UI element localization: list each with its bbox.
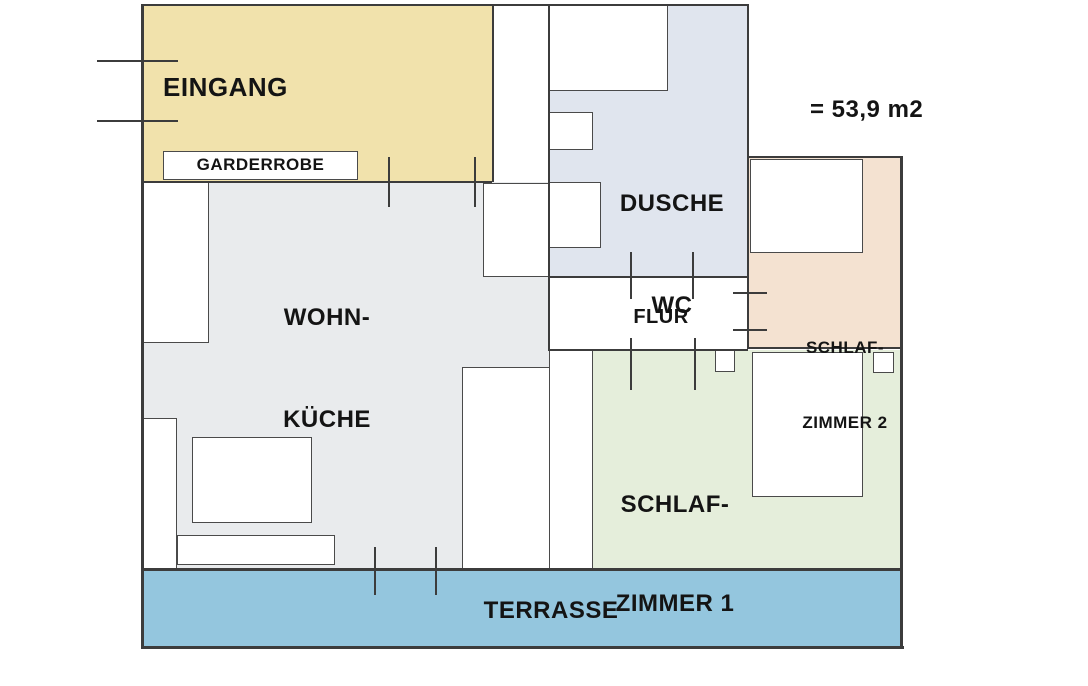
opening-tick [435, 547, 437, 595]
terrasse-label: TERRASSE [451, 597, 651, 626]
wohn-kueche-label-line2: KÜCHE [227, 403, 427, 437]
garderrobe-box: GARDERROBE [163, 151, 358, 180]
schlafzimmer-2-label-line2: ZIMMER 2 [770, 410, 920, 435]
opening-tick [374, 547, 376, 595]
furniture-box [143, 182, 209, 343]
area-annotation: = 53,9 m2 [810, 96, 923, 125]
dusche-wc-label-line1: DUSCHE [572, 187, 772, 221]
eingang-label: EINGANG [163, 72, 288, 103]
schlafzimmer-2-label-line1: SCHLAF- [770, 335, 920, 360]
schlafzimmer-2-label: SCHLAF- ZIMMER 2 [770, 285, 920, 485]
garderrobe-label: GARDERROBE [197, 155, 325, 175]
opening-tick [97, 120, 178, 122]
wohn-kueche-label: WOHN- KÜCHE [227, 233, 427, 505]
opening-tick [474, 157, 476, 207]
flur-label: FLUR [611, 305, 711, 329]
furniture-box [143, 418, 177, 570]
wohn-kueche-label-line1: WOHN- [227, 301, 427, 335]
dusche-wc-label: DUSCHE WC [572, 119, 772, 391]
wall-bottom [141, 646, 904, 649]
furniture-box [549, 4, 668, 91]
wall-eingang-bottom [143, 181, 492, 183]
schlafzimmer-1-label-line1: SCHLAF- [575, 488, 775, 521]
furniture-box [483, 183, 550, 277]
furniture-box [177, 535, 335, 565]
opening-tick [388, 157, 390, 207]
floor-plan: GARDERROBE EINGANG WOHN- KÜCHE DUSCHE W [0, 0, 1088, 650]
wall-eingang-right [492, 4, 494, 182]
wall-top [143, 4, 749, 6]
furniture-box [462, 367, 550, 570]
opening-tick [97, 60, 178, 62]
wall-dusche-left [548, 4, 550, 351]
schlafzimmer-1-label: SCHLAF- ZIMMER 1 [575, 422, 775, 686]
wall-terrasse-top [143, 568, 902, 571]
wall-left [141, 4, 144, 649]
